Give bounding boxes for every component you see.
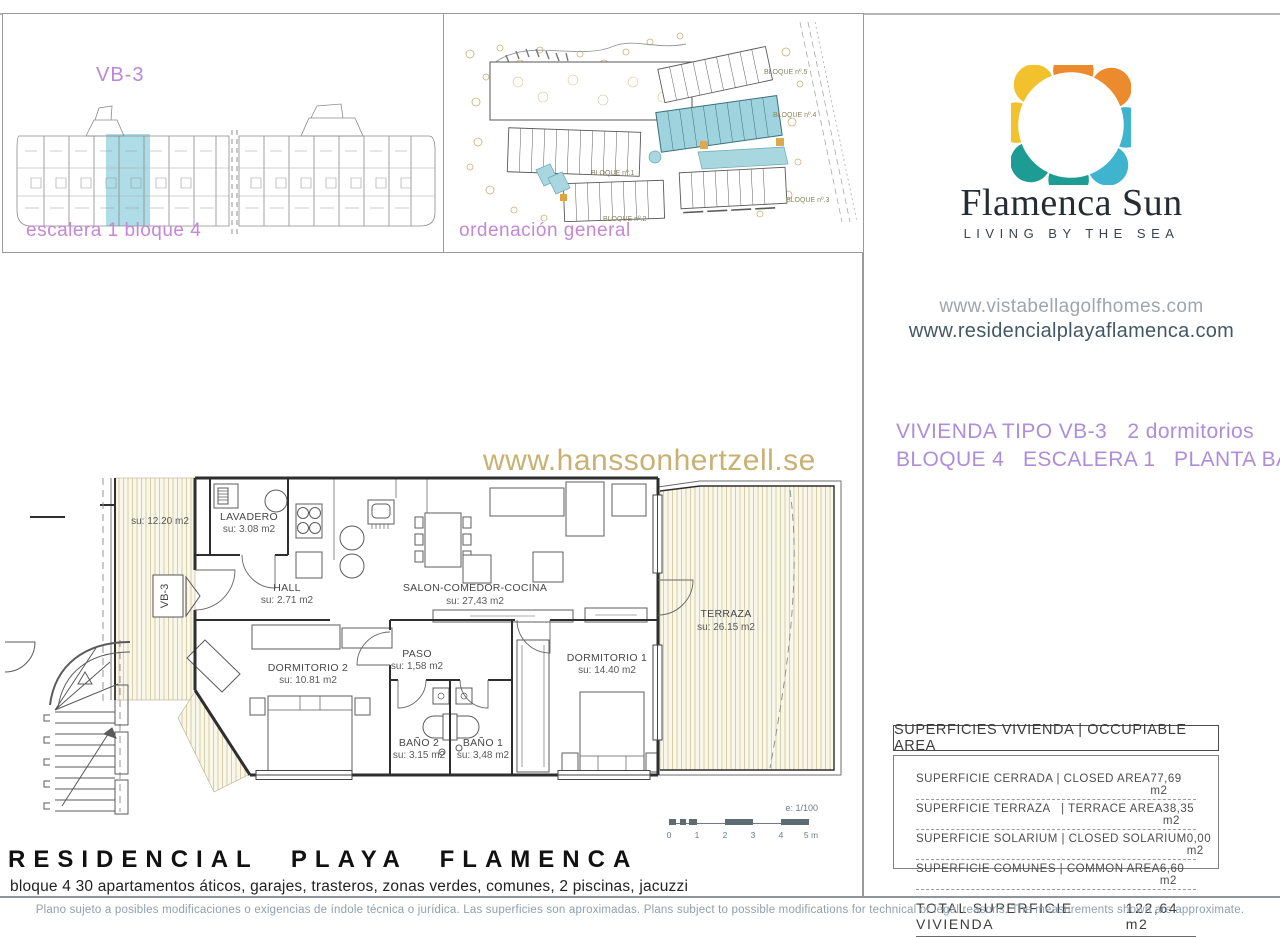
scale-segment bbox=[725, 819, 753, 825]
surfaces-table-header: SUPERFICIES VIVIENDA | OCCUPIABLE AREA bbox=[893, 725, 1219, 751]
scale-segment bbox=[680, 819, 686, 825]
disclaimer-text: Plano sujeto a posibles modificaciones o… bbox=[0, 904, 1280, 916]
floorplan-drawing: VB-3 su: 12.20 m2 LAVADERO su: 3.08 m2 H… bbox=[0, 460, 870, 860]
logo-blades bbox=[1011, 65, 1131, 185]
surface-label: SUPERFICIE SOLARIUM | CLOSED SOLARIUM bbox=[916, 833, 1187, 857]
hall-area: su: 2.71 m2 bbox=[261, 595, 314, 606]
unit-identification: VIVIENDA TIPO VB-3 2 dormitorios BLOQUE … bbox=[896, 420, 1254, 472]
terraza-area: su: 26.15 m2 bbox=[697, 622, 755, 633]
scale-tick: 5 m bbox=[804, 830, 818, 840]
surface-row-terrace: SUPERFICIE TERRAZA | TERRACE AREA 38,35 … bbox=[916, 800, 1196, 830]
brand-tagline: LIVING BY THE SEA bbox=[863, 226, 1280, 241]
paso-label: PASO bbox=[402, 648, 432, 660]
scale-segment bbox=[669, 819, 676, 825]
scale-ratio: e: 1/100 bbox=[785, 803, 818, 813]
dormitorio1-area: su: 14.40 m2 bbox=[578, 665, 636, 676]
surface-label: SUPERFICIE CERRADA | CLOSED AREA bbox=[916, 773, 1150, 797]
bano1-area: su: 3,48 m2 bbox=[457, 750, 510, 761]
scale-segment bbox=[689, 819, 697, 825]
scale-tick: 1 bbox=[695, 830, 700, 840]
surface-value: 0,00 m2 bbox=[1187, 833, 1211, 857]
brand-column: Flamenca Sun LIVING BY THE SEA www.vista… bbox=[863, 13, 1280, 893]
surface-row-closed: SUPERFICIE CERRADA | CLOSED AREA 77,69 m… bbox=[916, 770, 1196, 800]
plan-unit-tag-text: VB-3 bbox=[159, 584, 171, 608]
elevation-linework bbox=[17, 104, 435, 234]
siteplan-caption: ordenación general bbox=[459, 220, 631, 242]
terraza-izq-area: su: 12.20 m2 bbox=[131, 516, 189, 527]
scale-tick: 2 bbox=[723, 830, 728, 840]
website-residencial[interactable]: www.residencialplayaflamenca.com bbox=[863, 320, 1280, 343]
scale-segment bbox=[781, 819, 809, 825]
siteplan-label-bloque3: BLOQUE nº.3 bbox=[786, 197, 830, 204]
surface-value: 38,35 m2 bbox=[1163, 803, 1196, 827]
highlighted-unit bbox=[106, 134, 150, 226]
surface-label: SUPERFICIE COMUNES | COMMON AREA bbox=[916, 863, 1160, 887]
surface-label: SUPERFICIE TERRAZA | TERRACE AREA bbox=[916, 803, 1163, 827]
siteplan-label-bloque1: BLOQUE nº.1 bbox=[591, 170, 635, 177]
siteplan-linework: BLOQUE nº.5 BLOQUE nº.4 BLOQUE nº.3 BLOQ… bbox=[466, 22, 857, 222]
project-subtitle: bloque 4 30 apartamentos áticos, garajes… bbox=[10, 878, 688, 896]
flamenca-sun-logo bbox=[1011, 65, 1131, 185]
siteplan-panel: BLOQUE nº.5 BLOQUE nº.4 BLOQUE nº.3 BLOQ… bbox=[443, 13, 864, 253]
surface-value: 77,69 m2 bbox=[1150, 773, 1196, 797]
terraza-label: TERRAZA bbox=[700, 608, 751, 620]
scale-tick: 0 bbox=[667, 830, 672, 840]
surfaces-table: SUPERFICIE CERRADA | CLOSED AREA 77,69 m… bbox=[893, 755, 1219, 869]
dormitorio2-label: DORMITORIO 2 bbox=[268, 662, 348, 674]
lavadero-label: LAVADERO bbox=[220, 511, 278, 523]
footer-divider bbox=[0, 896, 1280, 898]
bano2-label: BAÑO 2 bbox=[399, 736, 439, 749]
unit-bedrooms: 2 dormitorios bbox=[1127, 420, 1254, 444]
salon-area: su: 27,43 m2 bbox=[446, 596, 504, 607]
bano1-label: BAÑO 1 bbox=[463, 736, 503, 749]
brand-name: Flamenca Sun bbox=[863, 181, 1280, 225]
siteplan-drawing: BLOQUE nº.5 BLOQUE nº.4 BLOQUE nº.3 BLOQ… bbox=[448, 22, 860, 222]
surfaces-header-text: SUPERFICIES VIVIENDA | OCCUPIABLE AREA bbox=[894, 722, 1218, 754]
scale-tick: 3 bbox=[751, 830, 756, 840]
bano2-area: su: 3.15 m2 bbox=[393, 750, 446, 761]
elevation-caption: escalera 1 bloque 4 bbox=[26, 220, 201, 242]
elevation-unit-tag: VB-3 bbox=[96, 64, 144, 87]
project-title: RESIDENCIAL PLAYA FLAMENCA bbox=[8, 846, 638, 874]
elevation-panel: VB-3 e bbox=[2, 13, 444, 253]
unit-type-label: VIVIENDA TIPO VB-3 bbox=[896, 420, 1107, 444]
scale-bar: e: 1/100 0 1 2 3 4 5 m bbox=[657, 814, 822, 844]
hall-label: HALL bbox=[273, 582, 300, 594]
siteplan-label-bloque5: BLOQUE nº.5 bbox=[764, 69, 808, 76]
siteplan-label-bloque4: BLOQUE nº.4 bbox=[773, 112, 817, 119]
paso-area: su: 1,58 m2 bbox=[391, 661, 444, 672]
surface-value: 6,60 m2 bbox=[1160, 863, 1196, 887]
unit-location: BLOQUE 4 ESCALERA 1 PLANTA BAJA bbox=[896, 448, 1254, 472]
plan-sheet-page: { "panel_elevation": { "tag": "VB-3", "c… bbox=[0, 0, 1280, 933]
lavadero-area: su: 3.08 m2 bbox=[223, 524, 276, 535]
dormitorio1-label: DORMITORIO 1 bbox=[567, 652, 647, 664]
surface-row-solarium: SUPERFICIE SOLARIUM | CLOSED SOLARIUM 0,… bbox=[916, 830, 1196, 860]
surface-row-common: SUPERFICIE COMUNES | COMMON AREA 6,60 m2 bbox=[916, 860, 1196, 890]
salon-label: SALON-COMEDOR-COCINA bbox=[403, 582, 547, 594]
scale-tick: 4 bbox=[779, 830, 784, 840]
dormitorio2-area: su: 10.81 m2 bbox=[279, 675, 337, 686]
website-vistabella[interactable]: www.vistabellagolfhomes.com bbox=[863, 296, 1280, 318]
